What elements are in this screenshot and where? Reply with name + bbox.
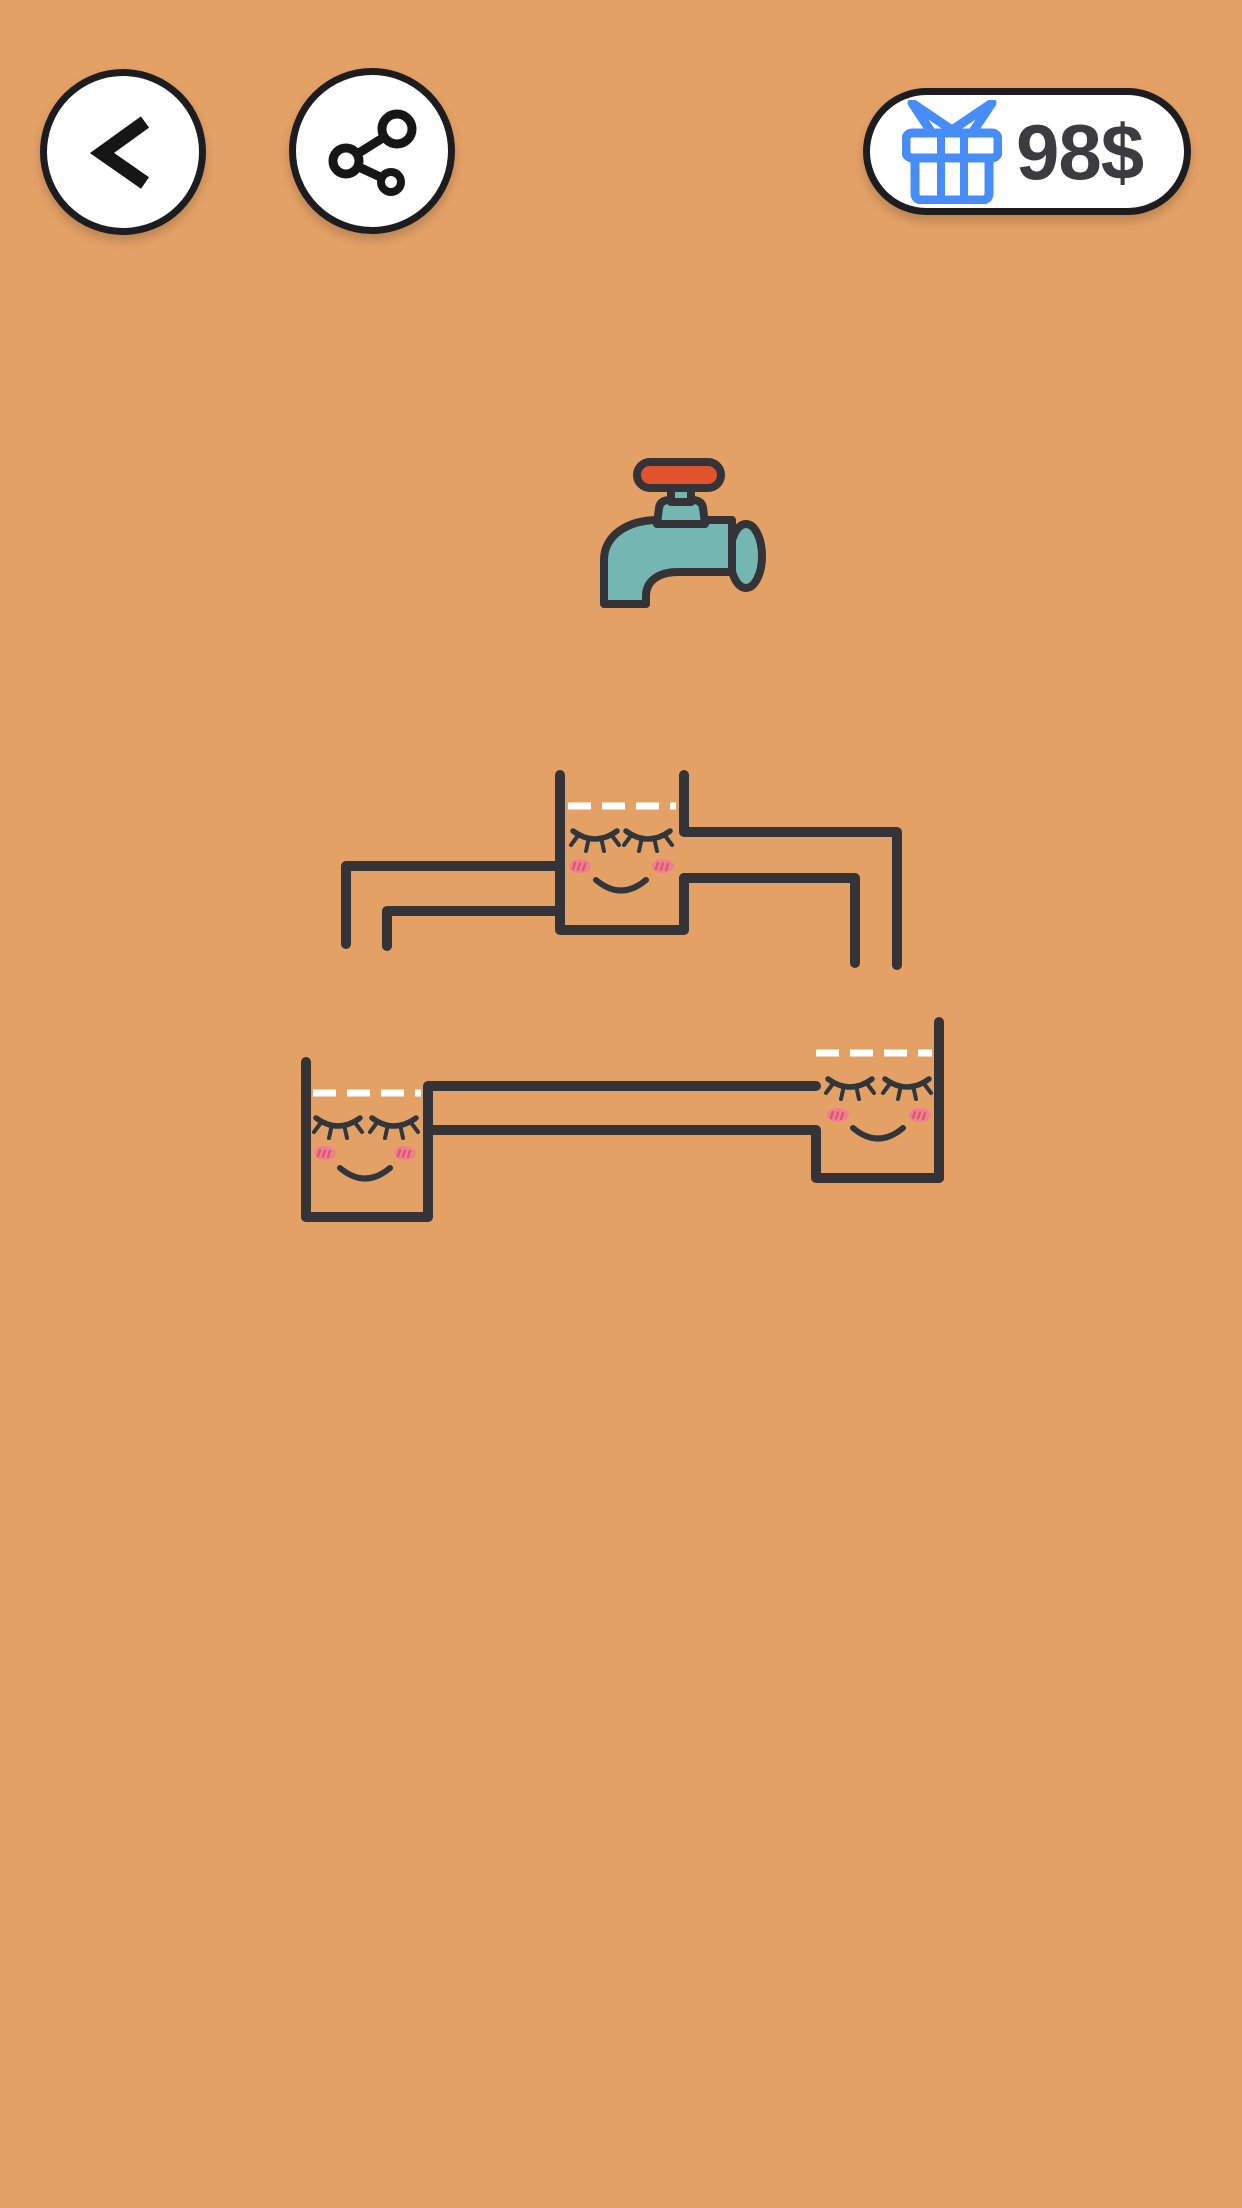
puzzle2-left-cup-and-pipe-top[interactable] [306, 1062, 816, 1217]
faucet-handle[interactable] [637, 462, 721, 488]
puzzle-1 [346, 775, 897, 965]
puzzle1-right-pipe-inner[interactable] [684, 878, 855, 963]
puzzle1-left-pipe-outer[interactable] [346, 866, 560, 944]
puzzle-scene [0, 0, 1242, 2208]
faucet-body-spout [604, 520, 732, 604]
puzzle2-left-cup-face [314, 1118, 418, 1179]
faucet-icon[interactable] [604, 462, 762, 604]
puzzle1-cup-walls[interactable] [560, 775, 684, 930]
game-screen: 98$ [0, 0, 1242, 2208]
puzzle1-cup-face [569, 831, 674, 891]
puzzle-2 [306, 1022, 939, 1217]
puzzle1-left-pipe-inner[interactable] [387, 911, 560, 946]
puzzle1-right-pipe-outer[interactable] [684, 775, 897, 965]
puzzle2-right-cup-face [826, 1079, 931, 1139]
